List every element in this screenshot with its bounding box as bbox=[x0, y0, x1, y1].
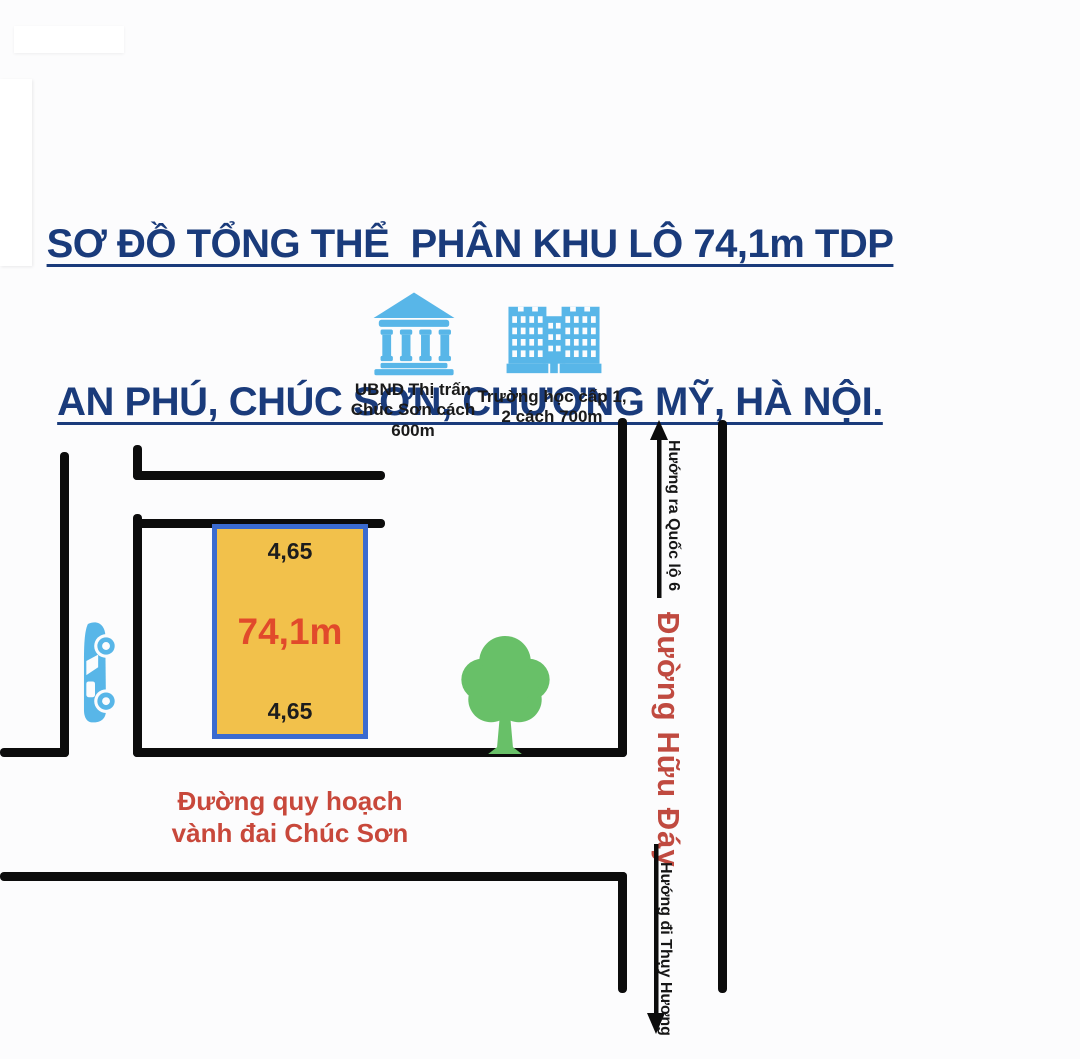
plot-bottom-width: 4,65 bbox=[268, 698, 313, 725]
plot-area-label: 74,1m bbox=[238, 611, 343, 653]
road-line-right-inner-lower bbox=[618, 872, 627, 993]
main-road-name: Đường Hữu Đáy bbox=[650, 612, 686, 868]
road-line-alley-left bbox=[60, 452, 69, 757]
school-label: Trường học cấp 1, 2 cách 700m bbox=[468, 387, 636, 428]
site-plan-diagram: SƠ ĐỒ TỔNG THỂ PHÂN KHU LÔ 74,1m TDP AN … bbox=[0, 0, 1080, 1059]
ubnd-label: UBND Thị trấn Chúc Sơn cách 600m bbox=[342, 380, 484, 441]
ubnd-label-line: 600m bbox=[342, 421, 484, 441]
tree-icon bbox=[455, 630, 555, 757]
road-line-right-outer bbox=[718, 420, 727, 993]
road-line-right-inner-upper bbox=[618, 418, 627, 757]
school-building-icon bbox=[506, 302, 602, 376]
planned-road-line-1: Đường quy hoạch bbox=[158, 786, 422, 818]
planned-road-line-2: vành đai Chúc Sơn bbox=[158, 818, 422, 850]
scroll-artifact bbox=[14, 26, 124, 53]
school-label-line: Trường học cấp 1, bbox=[468, 387, 636, 407]
road-line-bottom-lower bbox=[0, 872, 627, 881]
land-plot: 4,65 74,1m 4,65 bbox=[212, 524, 368, 739]
direction-up-label: Hướng ra Quốc lộ 6 bbox=[664, 440, 682, 591]
ubnd-label-line: UBND Thị trấn bbox=[342, 380, 484, 400]
planned-road-label: Đường quy hoạch vành đai Chúc Sơn bbox=[158, 786, 422, 849]
ubnd-label-line: Chúc Sơn cách bbox=[342, 400, 484, 420]
road-line-block-left bbox=[133, 514, 142, 757]
direction-down-label: Hướng đi Thụy Hương bbox=[656, 862, 674, 1036]
plot-top-width: 4,65 bbox=[268, 538, 313, 565]
car-icon bbox=[72, 620, 118, 724]
government-building-icon bbox=[370, 290, 458, 376]
school-label-line: 2 cách 700m bbox=[468, 407, 636, 427]
road-line-upper-horizontal bbox=[133, 471, 385, 480]
title-line-1: SƠ ĐỒ TỔNG THỂ PHÂN KHU LÔ 74,1m TDP bbox=[10, 218, 930, 271]
road-line-bottom-top-left bbox=[0, 748, 69, 757]
